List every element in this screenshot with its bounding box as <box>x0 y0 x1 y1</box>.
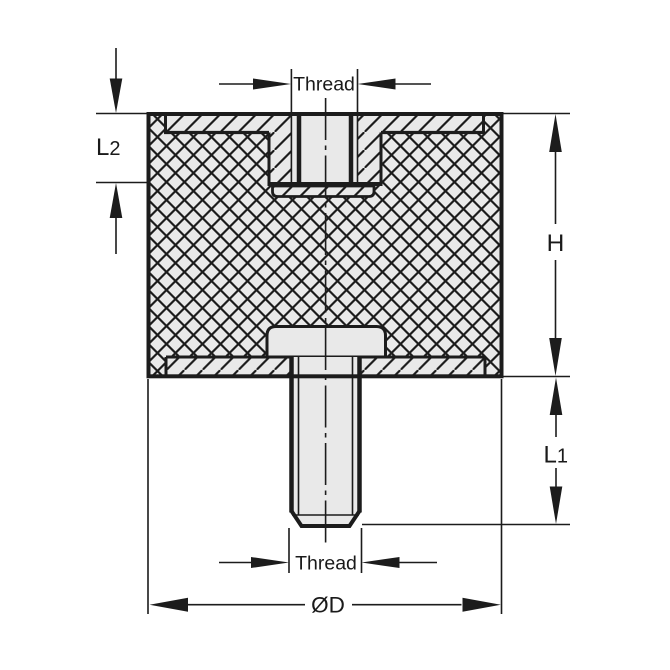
svg-text:Thread: Thread <box>295 553 357 575</box>
svg-text:Thread: Thread <box>293 74 355 96</box>
svg-text:L2: L2 <box>96 134 120 161</box>
svg-text:L1: L1 <box>544 442 568 469</box>
svg-text:H: H <box>547 230 565 257</box>
svg-text:ØD: ØD <box>311 593 345 618</box>
